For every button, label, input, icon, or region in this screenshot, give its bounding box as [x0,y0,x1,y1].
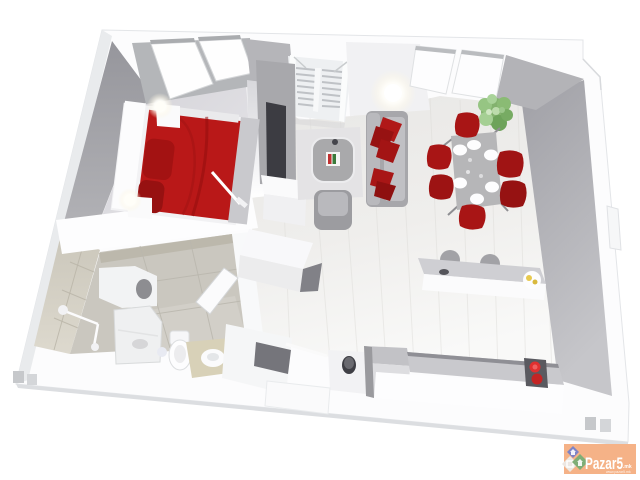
svg-text:www.pazar5.mk: www.pazar5.mk [606,470,631,474]
